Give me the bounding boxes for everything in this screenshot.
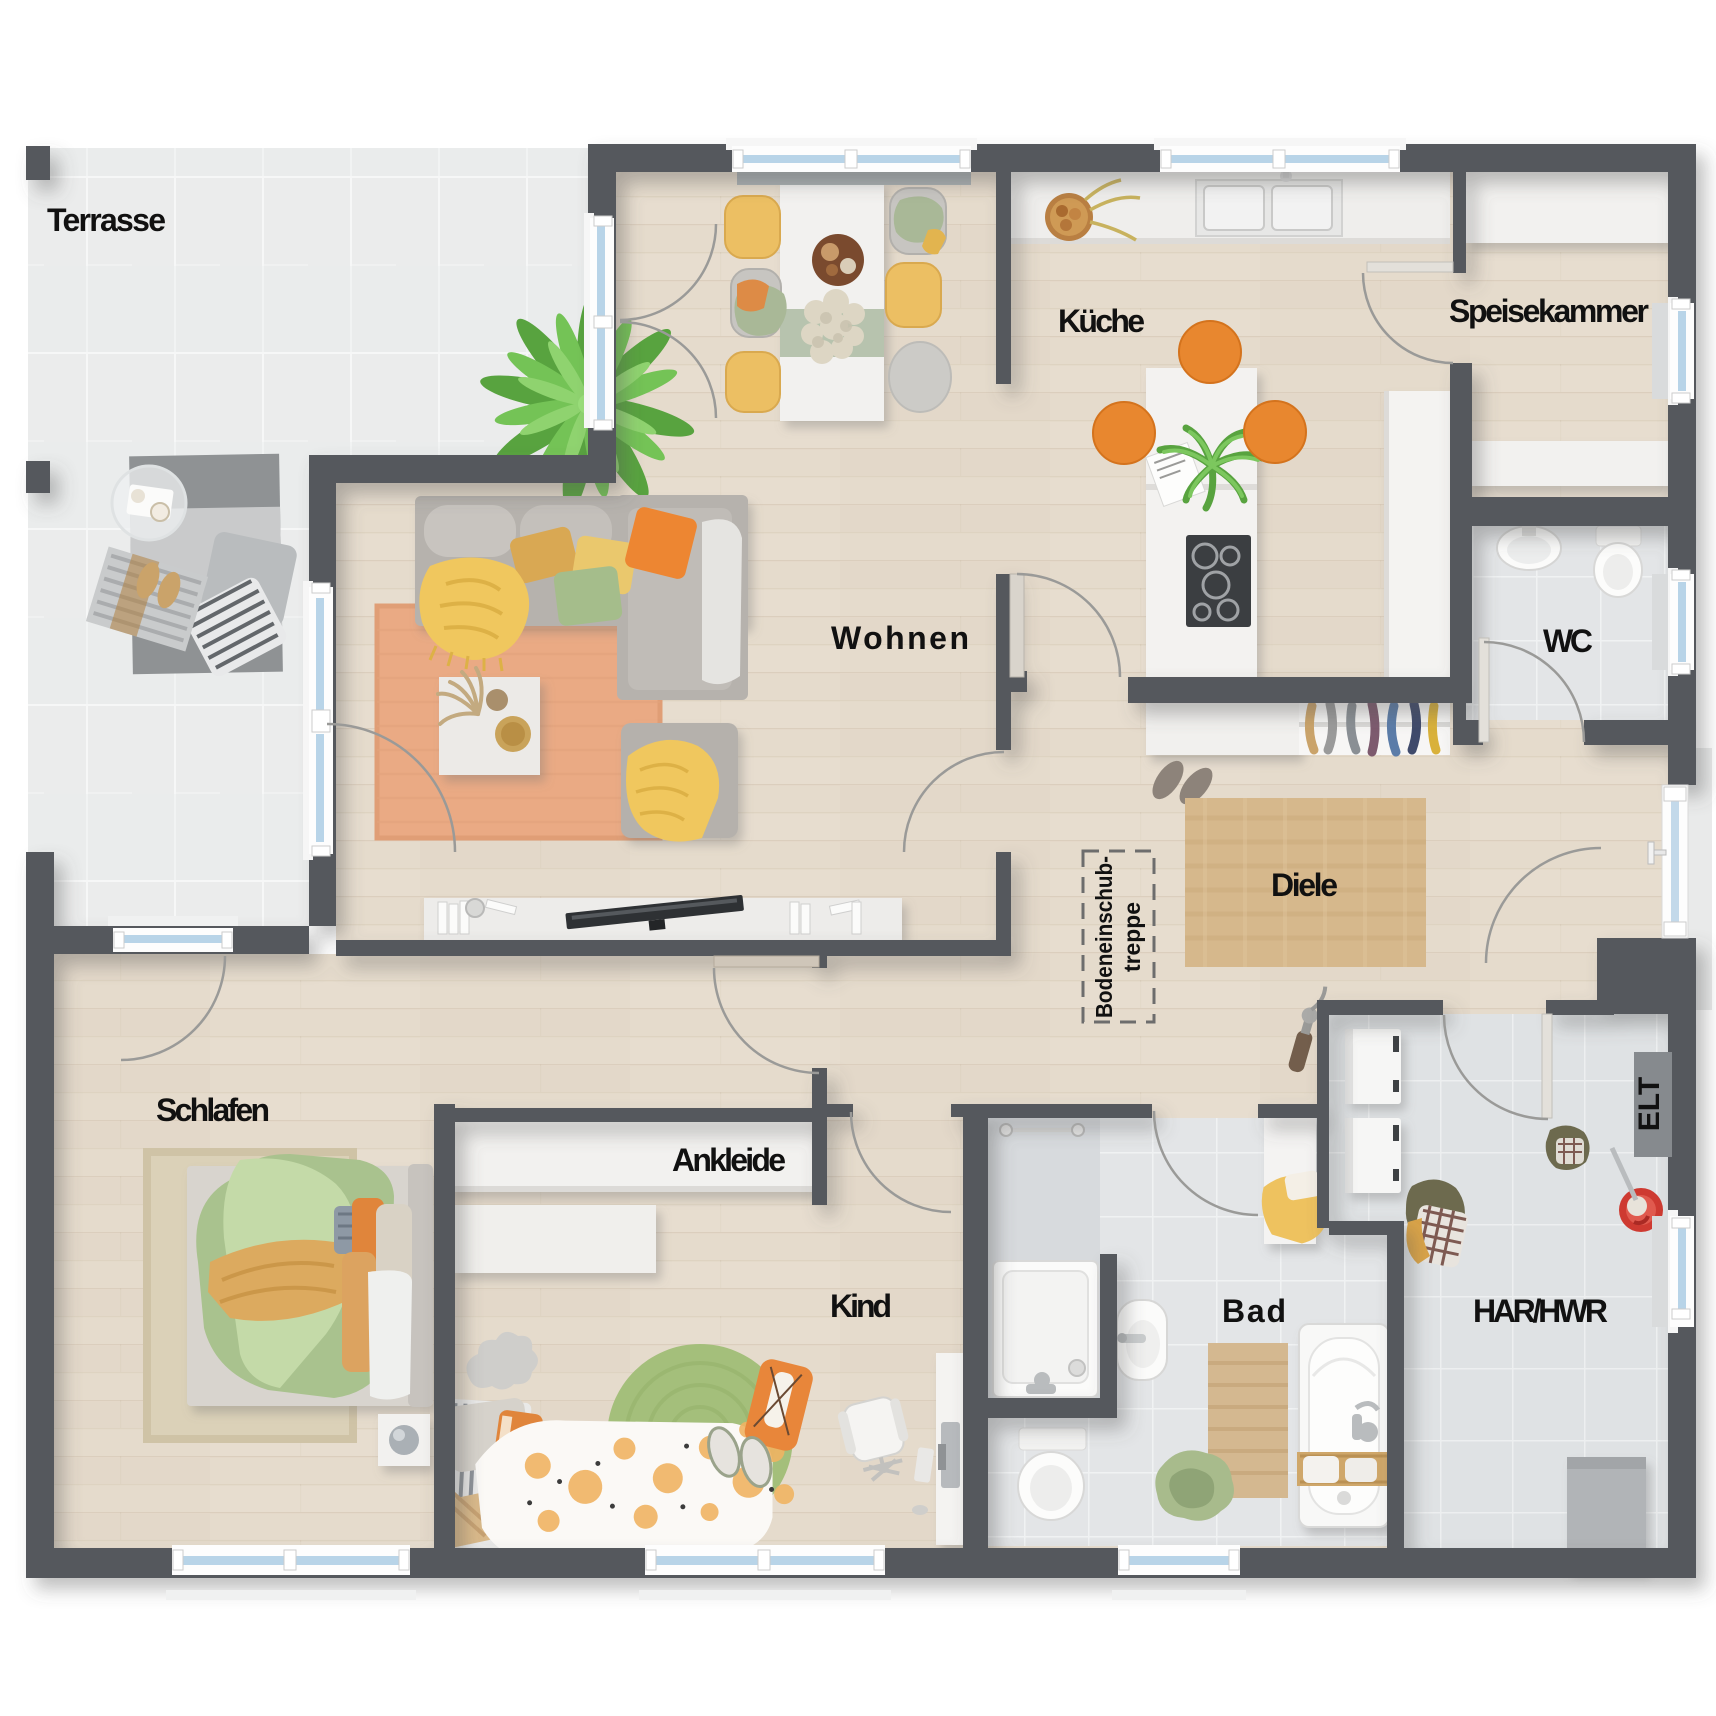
svg-text:Kind: Kind	[830, 1288, 892, 1324]
svg-text:ELT: ELT	[1633, 1077, 1666, 1131]
svg-text:Küche: Küche	[1058, 303, 1145, 339]
svg-text:Terrasse: Terrasse	[47, 202, 166, 238]
svg-text:Speisekammer: Speisekammer	[1449, 293, 1649, 329]
svg-text:treppe: treppe	[1119, 902, 1145, 972]
svg-text:HAR/HWR: HAR/HWR	[1473, 1293, 1608, 1329]
svg-text:WC: WC	[1543, 623, 1593, 659]
svg-text:Ankleide: Ankleide	[672, 1142, 786, 1178]
svg-text:Schlafen: Schlafen	[156, 1092, 270, 1128]
svg-text:Bodeneinschub-: Bodeneinschub-	[1091, 856, 1117, 1018]
svg-text:Bad: Bad	[1222, 1293, 1286, 1329]
svg-text:Diele: Diele	[1271, 867, 1338, 903]
